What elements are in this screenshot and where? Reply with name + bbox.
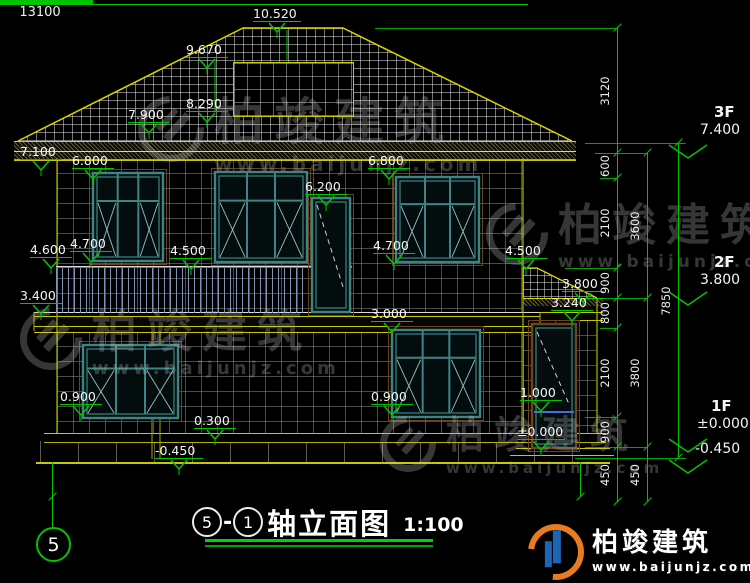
dimension-value: 600 [598, 136, 612, 196]
elevation-triangle-icon [515, 259, 537, 279]
brand-logo-icon [517, 513, 596, 583]
elevation-triangle-icon [378, 169, 400, 189]
elevation-value: 4.700 [70, 236, 106, 251]
elevation-triangle-icon [530, 440, 552, 460]
elevation-value: 8.290 [186, 96, 222, 111]
elevation-value: 0.300 [194, 413, 230, 428]
elevation-triangle-icon [381, 405, 403, 425]
floor-elevation-value: 3.800 [700, 272, 740, 288]
elevation-value: 3.240 [551, 295, 587, 310]
extension-line [375, 28, 617, 29]
dimension-chain-line [678, 143, 679, 458]
dimension-value: 7850 [659, 271, 673, 331]
elevation-triangle-icon [196, 58, 218, 78]
elevation-triangle-icon [381, 322, 403, 342]
drawing-title: 5 - 1 轴立面图 1:100 [192, 501, 464, 543]
elevation-triangle-icon [30, 160, 52, 180]
floor-label: 3F [714, 103, 735, 121]
dimension-value: 450 [628, 445, 642, 505]
elevation-triangle-icon [204, 429, 226, 449]
elevation-label: 6.800 [368, 153, 404, 168]
elevation-value: 4.500 [170, 243, 206, 258]
grid-axis-bubble: 5 [36, 527, 71, 562]
elevation-triangle-icon [196, 112, 218, 132]
title-underline [205, 539, 433, 542]
elevation-triangle-icon [561, 311, 583, 331]
elevation-label: 3.400 [20, 288, 56, 303]
elevation-label: -0.450 [155, 443, 195, 458]
elevation-label: 4.700 [70, 236, 106, 251]
floor-elevation-value: 7.400 [700, 122, 740, 138]
annotations-layer: 10.5209.6708.2907.9007.1006.8006.8006.20… [0, 0, 750, 583]
dimension-value: 3120 [598, 61, 612, 121]
elevation-label: 4.700 [373, 238, 409, 253]
dimension-value: 3600 [628, 196, 642, 256]
title-text: 轴立面图 [267, 501, 391, 543]
elevation-value: 6.800 [368, 153, 404, 168]
floor-label: 1F [711, 397, 732, 415]
elevation-label: 3.240 [551, 295, 587, 310]
dimension-value: 3800 [628, 343, 642, 403]
title-underline [205, 545, 433, 547]
elevation-triangle-icon [266, 22, 288, 42]
elevation-label: 4.500 [170, 243, 206, 258]
extension-line-vertical [580, 462, 581, 497]
dimension-value: 450 [598, 445, 612, 505]
elevation-value: -0.450 [155, 443, 195, 458]
elevation-value: 4.600 [30, 242, 66, 257]
elevation-label: 7.900 [128, 107, 164, 122]
elevation-triangle-icon [138, 123, 160, 143]
elevation-value: 6.200 [305, 179, 341, 194]
elevation-label: 8.290 [186, 96, 222, 111]
elevation-label: 3.800 [562, 276, 598, 291]
elevation-value: 0.900 [60, 389, 96, 404]
dimension-chain-line [647, 153, 648, 502]
elevation-value: 9.670 [186, 42, 222, 57]
elevation-value: 0.900 [371, 389, 407, 404]
elevation-triangle-icon [180, 259, 202, 279]
elevation-label: 6.800 [72, 153, 108, 168]
brand-logo: 柏竣建筑 www.baijunjz.com [528, 524, 750, 580]
elevation-label: 10.520 [253, 6, 297, 21]
floor-elevation-value: -0.450 [695, 441, 740, 457]
floor-elevation-value: ±0.000 [697, 416, 749, 432]
elevation-value: 10.520 [253, 6, 297, 21]
elevation-triangle-icon [168, 459, 190, 479]
title-dash: - [223, 510, 232, 535]
elevation-triangle-icon [383, 254, 405, 274]
brand-url: www.baijunjz.com [592, 560, 750, 574]
elevation-label: 9.670 [186, 42, 222, 57]
dimension-value: 2100 [598, 193, 612, 253]
elevation-triangle-icon [315, 195, 337, 215]
dimension-value: 2100 [598, 343, 612, 403]
elevation-label: 4.500 [505, 243, 541, 258]
elevation-triangle-icon [80, 252, 102, 272]
elevation-value: 3.800 [562, 276, 598, 291]
elevation-value: 4.500 [505, 243, 541, 258]
elevation-triangle-icon [40, 258, 62, 278]
elevation-label: 0.300 [194, 413, 230, 428]
dimension-value: 800 [598, 283, 612, 343]
bottom-dimension-value: 13100 [0, 5, 80, 20]
elevation-label: 6.200 [305, 179, 341, 194]
floor-level-triangle-icon [668, 291, 708, 308]
elevation-label: 0.900 [60, 389, 96, 404]
title-scale: 1:100 [403, 514, 463, 536]
elevation-label: 3.000 [371, 306, 407, 321]
brand-name: 柏竣建筑 [592, 530, 750, 557]
elevation-drawing: 柏竣建筑 www.baijunjz.com 柏竣建筑 www.baijunjz.… [0, 0, 750, 583]
elevation-value: 3.000 [371, 306, 407, 321]
elevation-label: 0.900 [371, 389, 407, 404]
elevation-value: 3.400 [20, 288, 56, 303]
elevation-value: ±0.000 [517, 424, 563, 439]
floor-label: 2F [714, 253, 735, 271]
elevation-value: 7.900 [128, 107, 164, 122]
elevation-triangle-icon [82, 169, 104, 189]
elevation-value: 6.800 [72, 153, 108, 168]
axis-bubble-start: 5 [192, 507, 222, 537]
elevation-label: 1.000 [520, 385, 556, 400]
elevation-triangle-icon [30, 304, 52, 324]
elevation-value: 7.100 [20, 144, 56, 159]
elevation-label: 7.100 [20, 144, 56, 159]
elevation-triangle-icon [70, 405, 92, 425]
elevation-triangle-icon [530, 401, 552, 421]
axis-bubble-end: 1 [233, 507, 263, 537]
elevation-label: ±0.000 [517, 424, 563, 439]
elevation-label: 4.600 [30, 242, 66, 257]
elevation-value: 1.000 [520, 385, 556, 400]
elevation-value: 4.700 [373, 238, 409, 253]
